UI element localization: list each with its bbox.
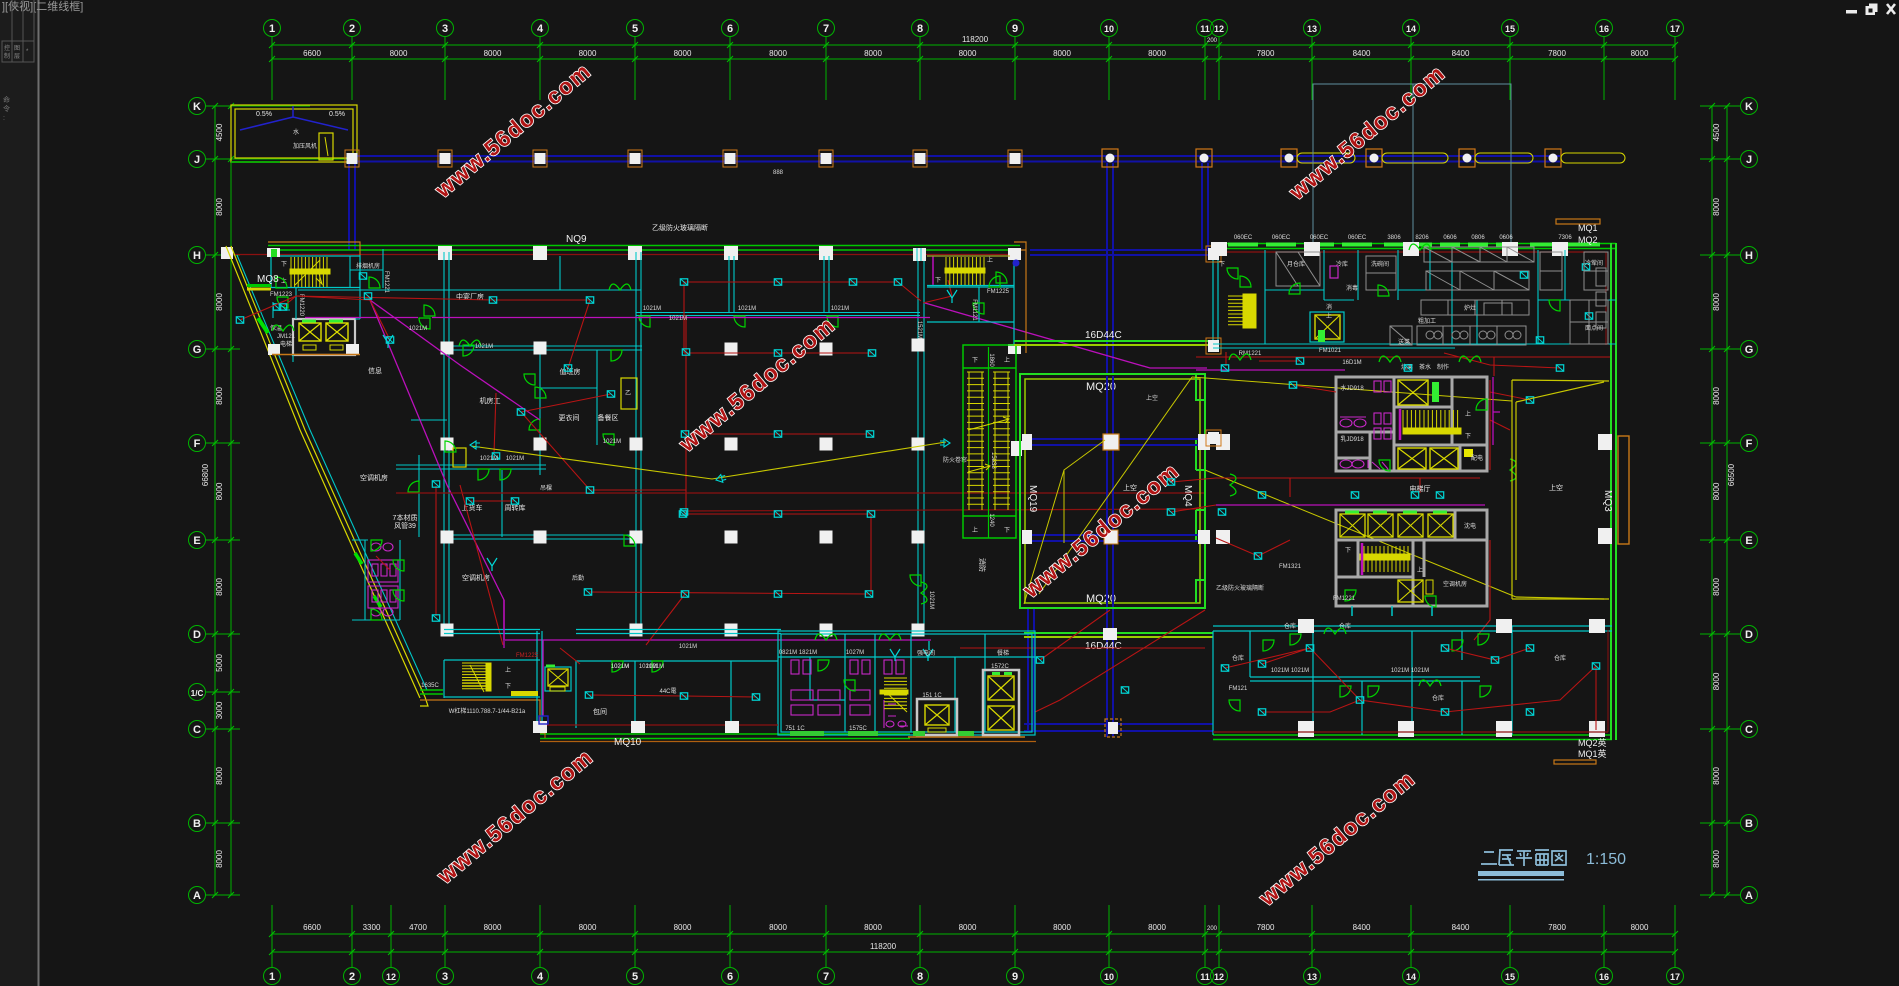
svg-text:8000: 8000: [215, 387, 224, 405]
svg-text:3300: 3300: [363, 923, 381, 932]
svg-text:8000: 8000: [215, 767, 224, 785]
svg-text:下: 下: [1004, 527, 1010, 534]
svg-text:8: 8: [917, 23, 923, 35]
svg-text:吊棵: 吊棵: [540, 484, 552, 492]
svg-text:命: 命: [3, 95, 10, 104]
svg-text:6: 6: [727, 23, 733, 35]
svg-text:8000: 8000: [215, 293, 224, 311]
svg-text:1021M: 1021M: [646, 664, 664, 670]
svg-text:3000: 3000: [215, 701, 224, 719]
svg-text:RM1221: RM1221: [1239, 351, 1262, 357]
svg-text:1021M: 1021M: [611, 664, 629, 670]
svg-text:C: C: [1745, 724, 1753, 736]
svg-text:8206: 8206: [1415, 235, 1429, 241]
svg-text:7: 7: [823, 23, 829, 35]
svg-text:层: 层: [14, 53, 20, 60]
svg-text:0806: 0806: [1471, 235, 1485, 241]
svg-text:5000: 5000: [215, 654, 224, 672]
svg-text:水: 水: [293, 128, 299, 136]
svg-text:沈电: 沈电: [1464, 522, 1476, 530]
svg-text:下: 下: [1345, 547, 1351, 554]
svg-text:1021M: 1021M: [480, 456, 498, 462]
svg-text:118200: 118200: [962, 35, 989, 44]
svg-text:强电间: 强电间: [917, 649, 935, 657]
svg-text:FM1121: FM1121: [971, 299, 977, 321]
svg-text:060EC: 060EC: [1310, 235, 1329, 241]
svg-text:下: 下: [505, 683, 511, 690]
svg-text:消防: 消防: [978, 558, 987, 572]
svg-text:MQ10: MQ10: [614, 737, 642, 748]
svg-text:8000: 8000: [1712, 198, 1721, 216]
svg-text:J: J: [1746, 154, 1752, 166]
svg-text:][俠视][二维线框]: ][俠视][二维线框]: [2, 0, 83, 13]
svg-text:8000: 8000: [1712, 293, 1721, 311]
svg-text:8000: 8000: [215, 482, 224, 500]
svg-text:乳JD918: 乳JD918: [1340, 435, 1364, 443]
svg-text:NQ9: NQ9: [566, 234, 587, 245]
svg-text:MQ2英: MQ2英: [1578, 737, 1607, 748]
svg-text:44C電: 44C電: [659, 688, 676, 695]
svg-text:5: 5: [632, 971, 638, 983]
svg-text:0.5%: 0.5%: [256, 111, 272, 118]
svg-text:3: 3: [442, 971, 448, 983]
svg-text:B: B: [1745, 818, 1753, 830]
svg-text:8000: 8000: [1712, 387, 1721, 405]
svg-text:F: F: [194, 438, 201, 450]
svg-text:8400: 8400: [1353, 923, 1371, 932]
svg-text:2: 2: [349, 971, 355, 983]
svg-text:1521M: 1521M: [916, 321, 922, 339]
svg-text:8000: 8000: [215, 850, 224, 868]
svg-text:后勤: 后勤: [572, 574, 584, 582]
svg-text:16D1M: 16D1M: [1342, 360, 1361, 366]
svg-text:乙级防火玻璃隔断: 乙级防火玻璃隔断: [652, 223, 708, 232]
svg-text:6600: 6600: [303, 923, 321, 932]
svg-text:仓库: 仓库: [1284, 622, 1296, 630]
svg-text:10: 10: [1104, 972, 1114, 982]
svg-text:1021M: 1021M: [669, 316, 687, 322]
svg-text:200: 200: [1207, 38, 1218, 44]
svg-text:8000: 8000: [215, 198, 224, 216]
svg-text:7本材质: 7本材质: [393, 513, 418, 522]
svg-text:6600: 6600: [303, 49, 321, 58]
svg-text:10: 10: [1104, 24, 1114, 34]
svg-text:G: G: [193, 344, 202, 356]
svg-text:6: 6: [727, 971, 733, 983]
svg-text:K: K: [1745, 101, 1753, 113]
svg-text:A: A: [1745, 890, 1753, 902]
svg-text:1021M: 1021M: [409, 326, 427, 332]
svg-text:冷荤间: 冷荤间: [1585, 259, 1603, 267]
svg-text:8000: 8000: [579, 923, 597, 932]
svg-text:1635C: 1635C: [421, 683, 439, 689]
svg-text:1021M: 1021M: [506, 456, 524, 462]
svg-text:7800: 7800: [1257, 49, 1275, 58]
svg-text:送菜: 送菜: [1398, 338, 1410, 346]
svg-text:66500: 66500: [1727, 463, 1736, 486]
svg-text:8000: 8000: [864, 923, 882, 932]
svg-text:上: 上: [987, 256, 993, 264]
svg-text:751 1C: 751 1C: [785, 726, 805, 732]
svg-text:H: H: [1745, 250, 1753, 262]
svg-text:8000: 8000: [1712, 578, 1721, 596]
svg-text:FM1225: FM1225: [516, 653, 539, 659]
svg-text:MQ1英: MQ1英: [1578, 748, 1607, 759]
svg-text:下: 下: [972, 357, 978, 364]
svg-text:1572C: 1572C: [991, 664, 1009, 670]
svg-text:13: 13: [1307, 24, 1317, 34]
svg-text:1: 1: [269, 23, 275, 35]
svg-text:1: 1: [269, 971, 275, 983]
svg-text:2: 2: [349, 23, 355, 35]
svg-text:8000: 8000: [390, 49, 408, 58]
svg-text:上空: 上空: [1549, 483, 1563, 492]
svg-text:下: 下: [1219, 261, 1225, 268]
svg-text:13: 13: [1307, 972, 1317, 982]
svg-text:8000: 8000: [215, 578, 224, 596]
svg-text:8000: 8000: [1053, 923, 1071, 932]
svg-text:JM121: JM121: [277, 334, 296, 340]
svg-text:7800: 7800: [1257, 923, 1275, 932]
svg-text:机房工: 机房工: [480, 396, 501, 405]
svg-text:8000: 8000: [674, 49, 692, 58]
svg-text:118200: 118200: [870, 942, 897, 951]
svg-text:消毒: 消毒: [1346, 284, 1358, 292]
svg-text:14: 14: [1406, 24, 1416, 34]
svg-text:1021M: 1021M: [738, 306, 756, 312]
svg-text:14: 14: [1406, 972, 1416, 982]
svg-text:8000: 8000: [769, 923, 787, 932]
svg-text:8000: 8000: [674, 923, 692, 932]
svg-text:1240: 1240: [988, 513, 994, 527]
svg-text:16D44C: 16D44C: [1085, 330, 1122, 341]
svg-text:C: C: [193, 724, 201, 736]
svg-text:060EC: 060EC: [1348, 235, 1367, 241]
svg-text:0821M 1821M: 0821M 1821M: [779, 650, 817, 656]
svg-text:更衣间: 更衣间: [559, 413, 580, 422]
svg-text:8000: 8000: [484, 49, 502, 58]
svg-text:K: K: [193, 101, 201, 113]
svg-text:FM1225: FM1225: [987, 289, 1010, 295]
svg-text:8400: 8400: [1452, 49, 1470, 58]
svg-text:060EC: 060EC: [1234, 235, 1253, 241]
svg-text:16D44C: 16D44C: [1085, 641, 1122, 652]
svg-text:制: 制: [4, 52, 10, 60]
svg-text:11: 11: [1200, 24, 1210, 34]
svg-text:1860: 1860: [988, 353, 994, 367]
svg-text:图: 图: [14, 45, 20, 52]
svg-text:F: F: [1746, 438, 1753, 450]
svg-text:令: 令: [3, 104, 10, 113]
svg-text:15: 15: [1505, 24, 1515, 34]
svg-text:16: 16: [1599, 972, 1609, 982]
svg-text:信息: 信息: [368, 366, 382, 375]
svg-text:151 1C: 151 1C: [922, 693, 942, 699]
svg-text:上: 上: [972, 526, 978, 534]
svg-text:1027M: 1027M: [846, 650, 864, 656]
svg-text:排烟机房: 排烟机房: [356, 262, 380, 270]
svg-text:8000: 8000: [484, 923, 502, 932]
svg-text:8000: 8000: [1712, 482, 1721, 500]
svg-text:FM1021: FM1021: [1319, 348, 1342, 354]
svg-text:1021M 1021M: 1021M 1021M: [1391, 668, 1429, 674]
svg-text:E: E: [193, 535, 200, 547]
svg-text:控: 控: [4, 44, 10, 52]
svg-text:3806: 3806: [1387, 235, 1401, 241]
svg-text:0606: 0606: [1499, 235, 1513, 241]
svg-text:1021M: 1021M: [603, 439, 621, 445]
svg-text:上: 上: [1417, 566, 1423, 574]
svg-text:粗加工: 粗加工: [1418, 317, 1436, 325]
svg-text:餐梯: 餐梯: [997, 649, 1009, 657]
svg-text:上: 上: [505, 666, 511, 674]
svg-text:H: H: [193, 250, 201, 262]
svg-text:4: 4: [537, 23, 544, 35]
svg-text:17: 17: [1670, 972, 1680, 982]
svg-text:8000: 8000: [1712, 767, 1721, 785]
svg-text:MQ20: MQ20: [1086, 593, 1116, 605]
svg-text:7306: 7306: [1558, 235, 1572, 241]
svg-text:8000: 8000: [1631, 923, 1649, 932]
svg-text:0606: 0606: [1443, 235, 1457, 241]
svg-text:备餐区: 备餐区: [598, 413, 619, 422]
svg-text:下: 下: [1465, 433, 1471, 440]
svg-text:8000: 8000: [1631, 49, 1649, 58]
svg-text:7: 7: [823, 971, 829, 983]
svg-text:0.5%: 0.5%: [329, 111, 345, 118]
svg-text:仓库: 仓库: [1232, 654, 1244, 662]
svg-text:66800: 66800: [201, 463, 210, 486]
svg-text:8000: 8000: [864, 49, 882, 58]
svg-text:200: 200: [1207, 926, 1218, 932]
svg-text:E: E: [1745, 535, 1752, 547]
svg-text:B: B: [193, 818, 201, 830]
svg-text:1021M 1021M: 1021M 1021M: [1271, 668, 1309, 674]
svg-text:1575C: 1575C: [849, 726, 867, 732]
svg-text:J: J: [194, 154, 200, 166]
svg-text:水JD918: 水JD918: [1340, 384, 1364, 392]
svg-text:8000: 8000: [1053, 49, 1071, 58]
svg-text:4500: 4500: [215, 123, 224, 141]
svg-text:防火卷帘: 防火卷帘: [943, 456, 967, 464]
svg-text:下: 下: [281, 261, 287, 268]
svg-text:FM1321: FM1321: [1279, 564, 1302, 570]
svg-text:仓库: 仓库: [1554, 654, 1566, 662]
svg-text:12: 12: [1214, 972, 1224, 982]
svg-text:15: 15: [1505, 972, 1515, 982]
svg-text:仓库: 仓库: [1432, 694, 1444, 702]
svg-text:炉灶: 炉灶: [1464, 304, 1476, 312]
svg-text:空调机房: 空调机房: [360, 473, 388, 482]
svg-text::: :: [3, 115, 5, 122]
svg-text:MQ8: MQ8: [257, 274, 279, 285]
svg-text:3: 3: [442, 23, 448, 35]
svg-text:1:150: 1:150: [1586, 851, 1626, 868]
svg-text:9: 9: [1012, 23, 1018, 35]
svg-text:MQ19: MQ19: [1027, 485, 1038, 513]
svg-text:7800: 7800: [1548, 49, 1566, 58]
svg-text:上空: 上空: [1146, 394, 1158, 402]
svg-text:8000: 8000: [579, 49, 597, 58]
svg-text:8: 8: [917, 971, 923, 983]
svg-text:11: 11: [1200, 972, 1210, 982]
svg-text:4: 4: [537, 971, 544, 983]
svg-text:8400: 8400: [1452, 923, 1470, 932]
svg-text:MQ4: MQ4: [1182, 485, 1193, 507]
svg-text:上: 上: [1465, 410, 1471, 418]
svg-text:8000: 8000: [959, 923, 977, 932]
svg-text:8000: 8000: [1148, 49, 1166, 58]
svg-text:MQ3: MQ3: [1602, 490, 1613, 512]
svg-text:8000: 8000: [1712, 850, 1721, 868]
svg-text:MQ20: MQ20: [1086, 381, 1116, 393]
svg-text:8000: 8000: [769, 49, 787, 58]
svg-text:电梯: 电梯: [280, 340, 292, 348]
svg-text:9: 9: [1012, 971, 1018, 983]
svg-text:16: 16: [1599, 24, 1609, 34]
svg-text:5: 5: [632, 23, 638, 35]
svg-text:乙: 乙: [625, 390, 631, 397]
svg-text:G: G: [1745, 344, 1754, 356]
svg-text:888: 888: [773, 170, 784, 176]
svg-text:8000: 8000: [1148, 923, 1166, 932]
svg-text:8400: 8400: [1353, 49, 1371, 58]
svg-text:D: D: [1745, 629, 1753, 641]
svg-text:8000: 8000: [959, 49, 977, 58]
svg-text:加压风机: 加压风机: [293, 142, 317, 150]
svg-text:消: 消: [1326, 303, 1332, 311]
svg-text:060EC: 060EC: [1272, 235, 1291, 241]
svg-text:12: 12: [1214, 24, 1224, 34]
svg-text:上: 上: [1326, 312, 1332, 320]
svg-text:W杠梯1110.788.7-1/44-B21a: W杠梯1110.788.7-1/44-B21a: [449, 707, 526, 715]
svg-text:上: 上: [1004, 356, 1010, 364]
svg-text:4700: 4700: [409, 923, 427, 932]
svg-text:4500: 4500: [1712, 123, 1721, 141]
svg-text:面点间: 面点间: [1585, 324, 1603, 332]
svg-text:乙级防火玻璃隔断: 乙级防火玻璃隔断: [1216, 584, 1264, 592]
svg-text:FM1220: FM1220: [298, 294, 304, 317]
svg-text:下: 下: [935, 277, 941, 284]
svg-text:1/C: 1/C: [191, 689, 204, 698]
svg-text:风管39: 风管39: [394, 521, 416, 530]
svg-text:1021M: 1021M: [928, 591, 934, 609]
svg-text:1021M: 1021M: [475, 344, 493, 350]
svg-text:8000: 8000: [1712, 672, 1721, 690]
svg-text:MQ2: MQ2: [1578, 235, 1598, 245]
svg-text:配电: 配电: [1471, 454, 1483, 462]
svg-text:17: 17: [1670, 24, 1680, 34]
svg-text:D: D: [193, 629, 201, 641]
svg-text:1021M: 1021M: [643, 306, 661, 312]
svg-text:1021M: 1021M: [679, 644, 697, 650]
svg-text:月仓库: 月仓库: [1287, 260, 1305, 268]
svg-text:FM121: FM121: [1229, 686, 1248, 692]
svg-text:FM1221: FM1221: [1333, 596, 1356, 602]
svg-text:A: A: [193, 890, 201, 902]
svg-text:7800: 7800: [1548, 923, 1566, 932]
svg-text:包间: 包间: [593, 707, 607, 716]
svg-text:1021M: 1021M: [831, 306, 849, 312]
svg-text:洗碗间: 洗碗间: [1371, 260, 1389, 268]
svg-text:12: 12: [386, 972, 396, 982]
svg-text:空调机房: 空调机房: [1443, 580, 1467, 588]
